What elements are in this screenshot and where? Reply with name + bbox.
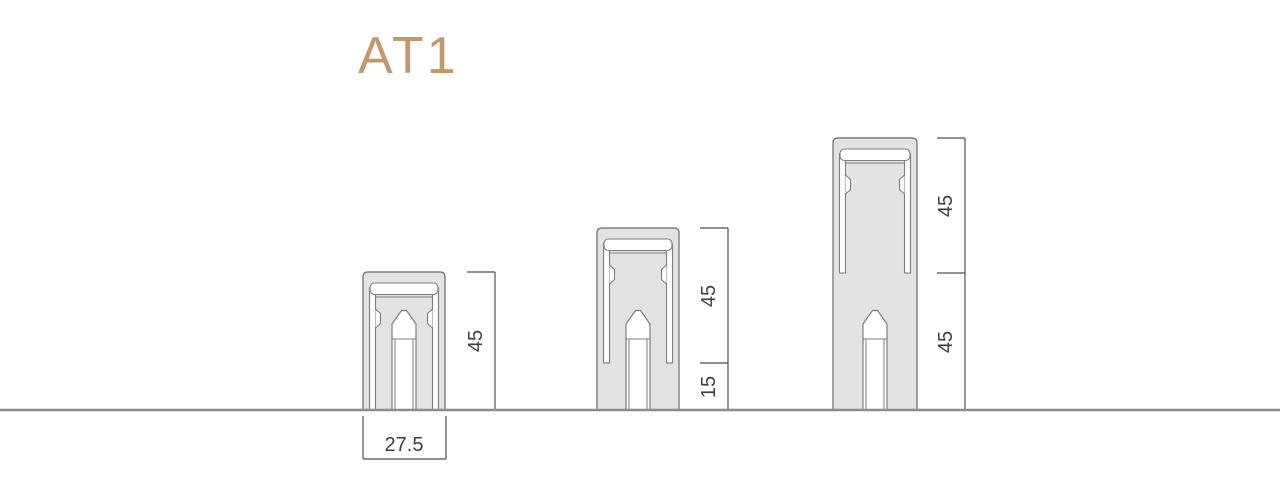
dimension-height-45: 45 [465,272,495,410]
gap-strip-right [905,154,911,273]
dimension-label: 15 [698,376,720,398]
diagram-page: AT1 454515454527.5 [0,0,1280,497]
dimension-height-60: 4515 [698,228,728,410]
dimension-width: 27.5 [363,416,446,459]
anchor-channel [392,311,416,411]
dimension-label: 27.5 [385,434,424,456]
gap-strip-left [840,154,846,273]
dimension-label: 45 [698,285,720,307]
gap-strip-left [370,288,376,410]
dimension-label: 45 [465,330,487,352]
top-slot [840,149,910,161]
profile-45 [363,272,445,410]
top-slot [604,239,672,251]
profile-90 [833,138,917,410]
profile-60 [597,228,679,410]
anchor-channel [626,311,650,411]
dimension-label: 45 [935,195,957,217]
gap-strip-right [433,288,439,410]
gap-strip-left [604,244,610,363]
profile-diagram: 454515454527.5 [0,0,1280,497]
dimension-label: 45 [935,331,957,353]
dimension-height-90: 4545 [935,138,965,410]
top-slot [370,283,438,295]
anchor-channel [863,311,887,411]
gap-strip-right [667,244,673,363]
